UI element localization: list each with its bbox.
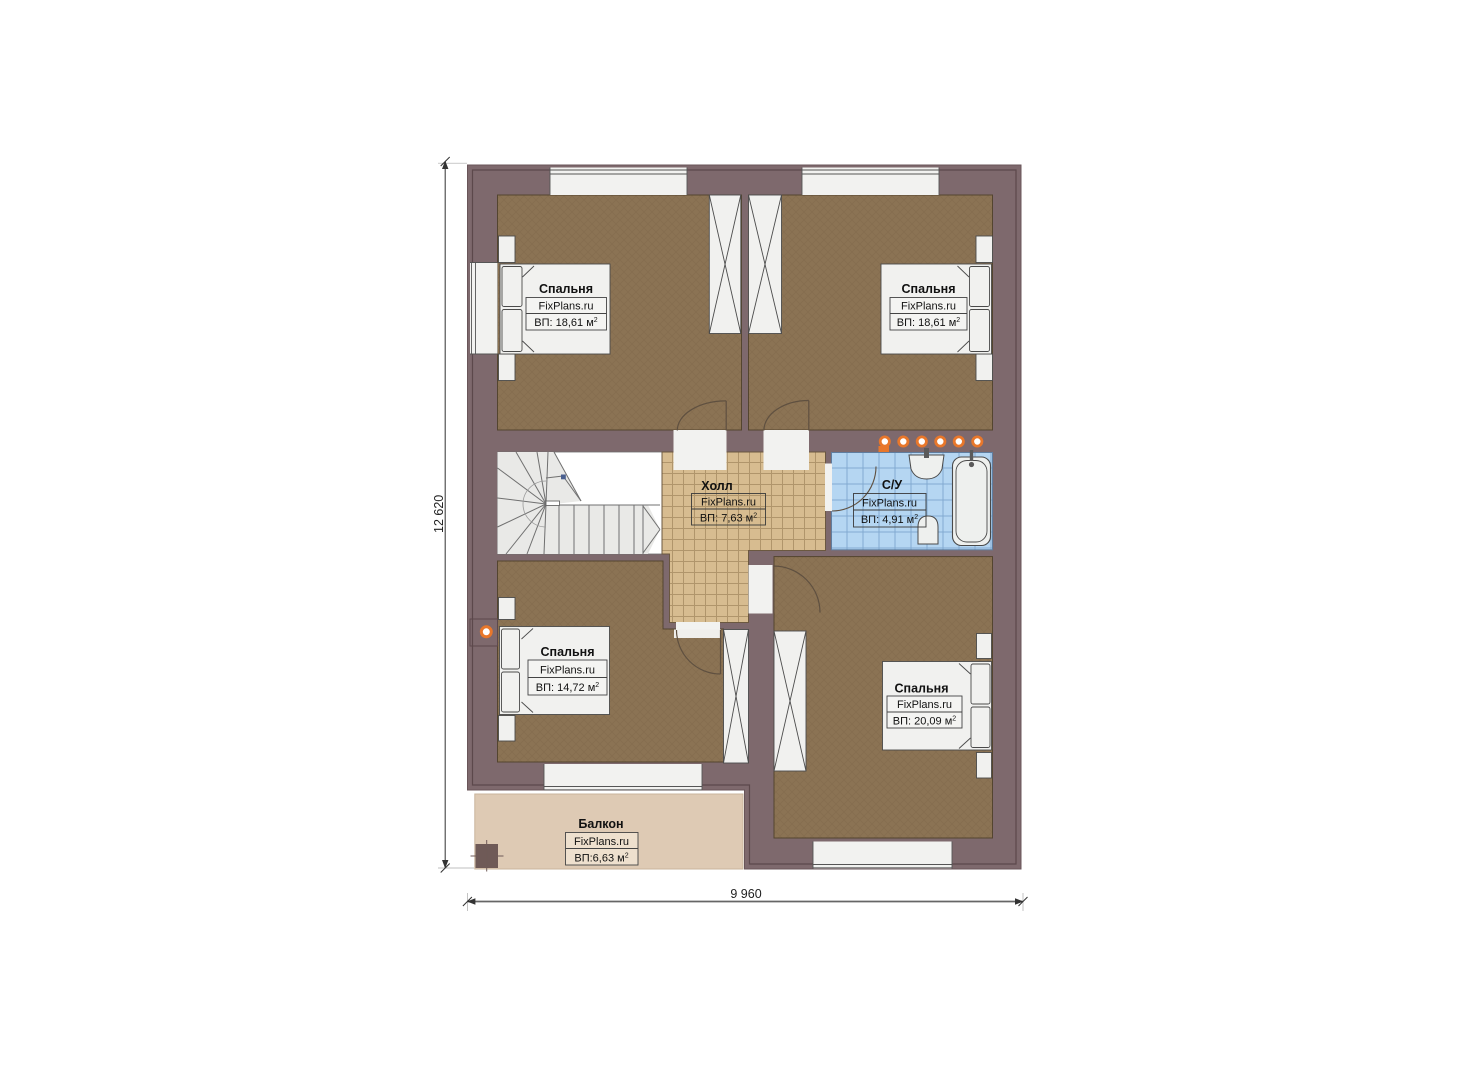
svg-text:9 960: 9 960 bbox=[730, 887, 761, 901]
svg-text:ВП: 18,61 м2: ВП: 18,61 м2 bbox=[534, 317, 598, 329]
svg-text:ВП: 20,09 м2: ВП: 20,09 м2 bbox=[893, 716, 957, 728]
svg-text:FixPlans.ru: FixPlans.ru bbox=[897, 699, 952, 711]
svg-text:FixPlans.ru: FixPlans.ru bbox=[862, 498, 917, 510]
svg-text:FixPlans.ru: FixPlans.ru bbox=[540, 665, 595, 677]
svg-text:ВП: 7,63 м2: ВП: 7,63 м2 bbox=[700, 513, 757, 525]
svg-text:ВП: 4,91 м2: ВП: 4,91 м2 bbox=[861, 514, 918, 526]
svg-text:Спальня: Спальня bbox=[541, 645, 595, 659]
svg-text:FixPlans.ru: FixPlans.ru bbox=[538, 301, 593, 313]
svg-text:Балкон: Балкон bbox=[578, 817, 623, 831]
svg-text:Спальня: Спальня bbox=[895, 682, 949, 696]
svg-text:12 620: 12 620 bbox=[432, 495, 446, 533]
svg-text:С/У: С/У bbox=[882, 478, 903, 492]
svg-text:FixPlans.ru: FixPlans.ru bbox=[574, 836, 629, 848]
svg-text:Спальня: Спальня bbox=[902, 282, 956, 296]
svg-text:FixPlans.ru: FixPlans.ru bbox=[901, 301, 956, 313]
svg-text:FixPlans.ru: FixPlans.ru bbox=[701, 497, 756, 509]
svg-text:ВП: 14,72 м2: ВП: 14,72 м2 bbox=[536, 682, 600, 694]
svg-text:Спальня: Спальня bbox=[539, 282, 593, 296]
svg-text:ВП:6,63 м2: ВП:6,63 м2 bbox=[574, 853, 628, 865]
svg-text:Холл: Холл bbox=[701, 479, 732, 493]
svg-text:ВП: 18,61 м2: ВП: 18,61 м2 bbox=[897, 317, 961, 329]
